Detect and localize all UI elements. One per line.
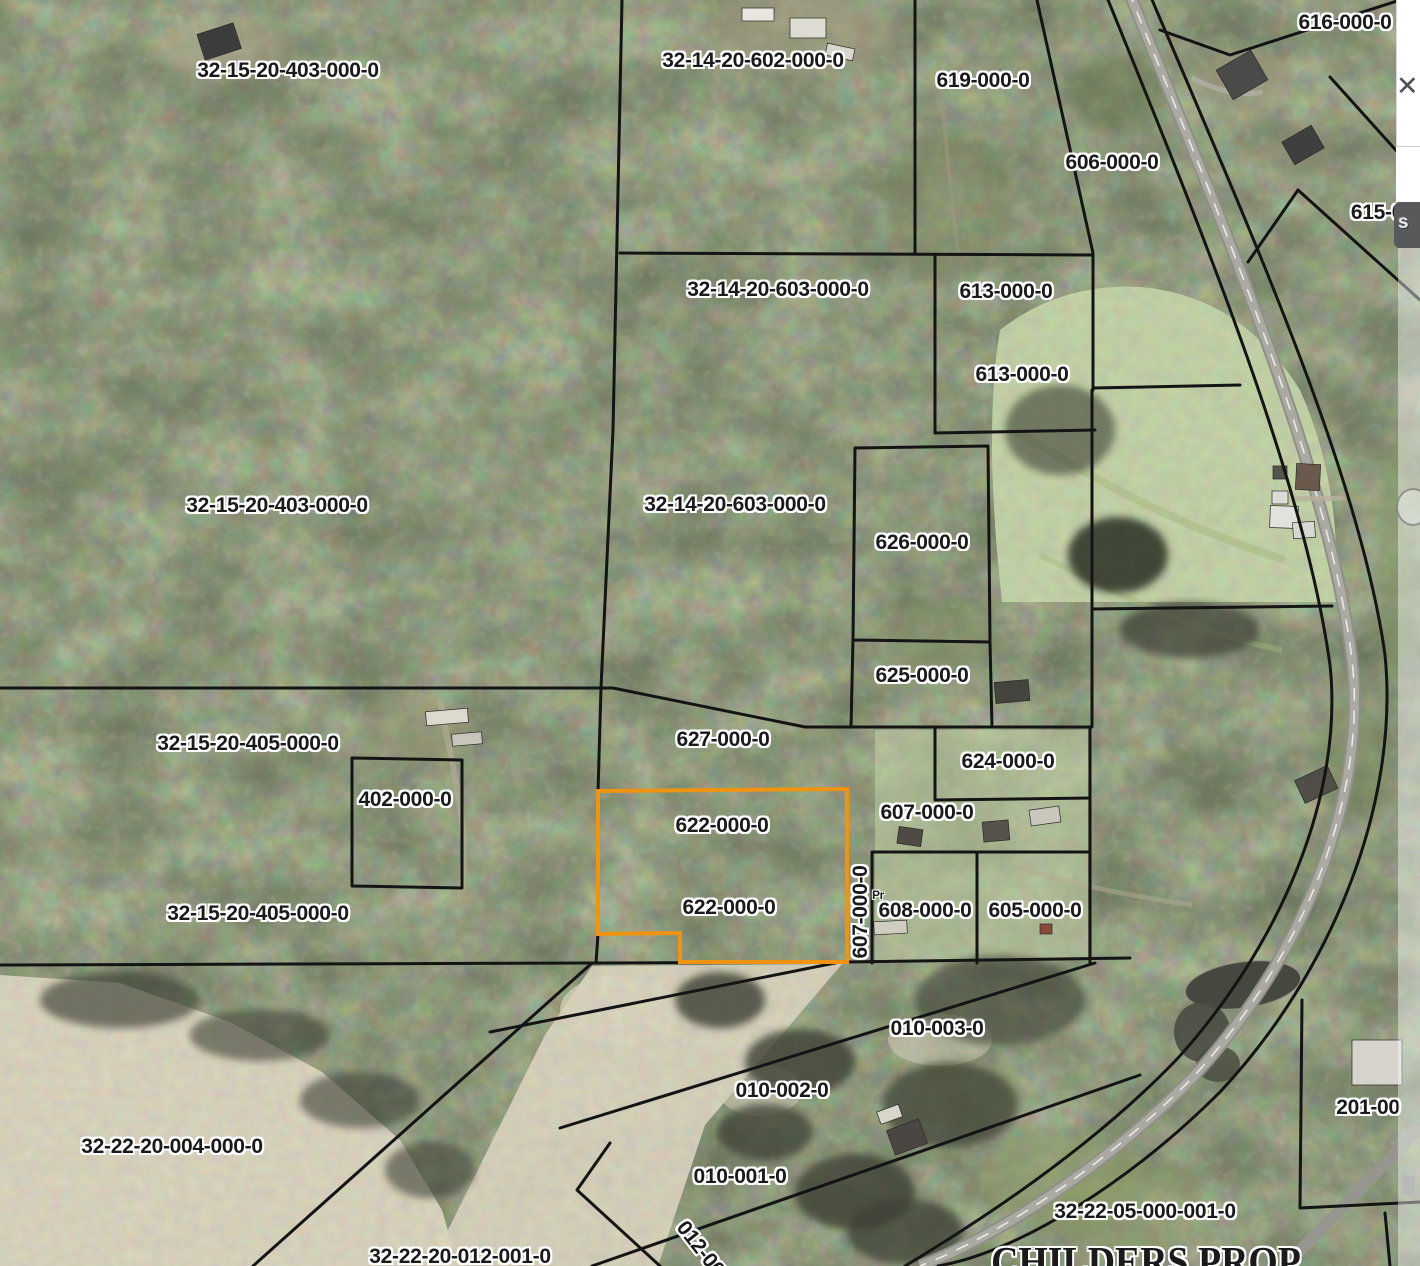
close-icon[interactable]: ✕ [1396, 72, 1420, 102]
parcel-label: 32-14-20-602-000-0 [662, 49, 843, 73]
parcel-label: 32-14-20-603-000-0 [687, 278, 868, 302]
driveway-farm [1295, 498, 1345, 499]
scrollbar-thumb[interactable] [1402, 1176, 1415, 1195]
owner-label-childers: CHILDERS PROP [991, 1239, 1301, 1266]
parcel-label: 608-000-0 [878, 899, 971, 923]
parcel-label: 32-15-20-405-000-0 [167, 902, 348, 926]
parcel-label: 616-000-0 [1298, 11, 1391, 35]
parcel-label: 625-000-0 [875, 664, 968, 688]
parcel-label: 32-22-05-000-001-0 [1054, 1200, 1235, 1224]
parcel-label: 627-000-0 [676, 728, 769, 752]
parcel-map[interactable]: 32-15-20-403-000-0 32-14-20-602-000-0 61… [0, 0, 1420, 1266]
parcel-label: 402-000-0 [358, 788, 451, 812]
parcel-label: 010-001-0 [693, 1165, 786, 1189]
parcel-label-vertical: 607-000-0 [849, 865, 873, 958]
parcel-label: 32-22-20-012-001-0 [369, 1245, 550, 1266]
parcel-label-selected: 622-000-0 [675, 814, 768, 838]
scrollbar-track[interactable] [1398, 248, 1420, 1266]
panel-divider [1396, 146, 1420, 147]
side-panel-edge-lower [1396, 147, 1420, 202]
parcel-label-selected: 622-000-0 [682, 896, 775, 920]
parcel-label: 010-003-0 [890, 1017, 983, 1041]
panel-text-fragment: s [1398, 212, 1409, 234]
parcel-label: 201-00 [1336, 1096, 1400, 1120]
parcel-label: 32-15-20-405-000-0 [157, 732, 338, 756]
parcel-label: 32-22-20-004-000-0 [81, 1135, 262, 1159]
parcel-label: 607-000-0 [880, 801, 973, 825]
map-canvas [0, 0, 1420, 1266]
parcel-label: 605-000-0 [988, 899, 1081, 923]
parcel-label: 613-000-0 [959, 280, 1052, 304]
parcel-label: 32-15-20-403-000-0 [197, 59, 378, 83]
parcel-label: 32-14-20-603-000-0 [644, 493, 825, 517]
parcel-label: 624-000-0 [961, 750, 1054, 774]
parcel-label: 619-000-0 [936, 69, 1029, 93]
parcel-label: 626-000-0 [875, 531, 968, 555]
parcel-label: 606-000-0 [1065, 151, 1158, 175]
parcel-label: 010-002-0 [735, 1079, 828, 1103]
parcel-label: 32-15-20-403-000-0 [186, 494, 367, 518]
parcel-label-small: Pr [872, 888, 884, 902]
parcel-label: 613-000-0 [975, 363, 1068, 387]
